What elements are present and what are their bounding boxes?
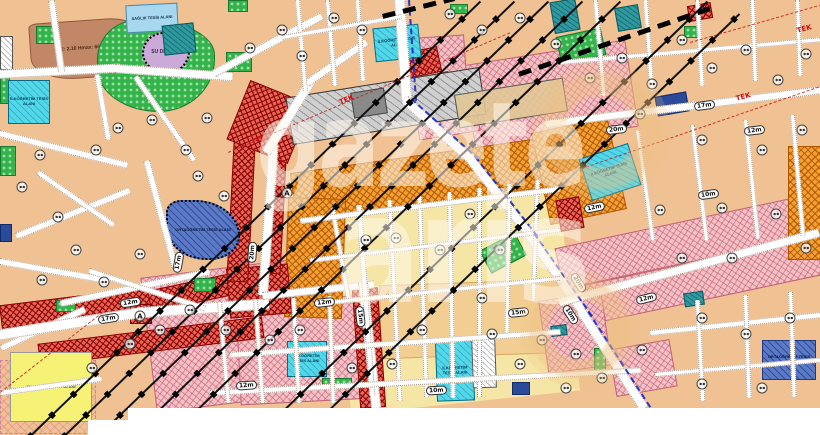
parcel-marker <box>801 49 812 60</box>
parcel-marker <box>147 115 158 126</box>
parcel-marker <box>445 9 456 20</box>
zone-blue-small-s <box>512 382 530 395</box>
road-width-label: 12m <box>744 125 766 136</box>
parcel-marker <box>697 135 708 146</box>
parcel-marker <box>785 313 796 324</box>
parcel-marker <box>113 123 124 134</box>
zone-park-small-10 <box>228 0 248 12</box>
road-segment <box>643 0 654 91</box>
road-width-label: 12m <box>236 380 257 390</box>
map-edge-mask <box>88 420 132 435</box>
road-width-label: 17m <box>97 312 119 324</box>
parcel-marker <box>265 335 276 346</box>
zone-label: İLKÖĞRETİM TESİS ALANI <box>9 81 49 123</box>
parcel-marker <box>219 191 230 202</box>
road-segment <box>743 295 752 398</box>
parcel-marker <box>773 75 784 86</box>
parcel-marker <box>477 25 488 36</box>
parcel-marker <box>727 253 738 264</box>
road-width-label: 10m <box>426 385 447 395</box>
parcel-marker <box>697 313 708 324</box>
parcel-marker <box>717 203 728 214</box>
parcel-marker <box>387 359 398 370</box>
parcel-marker <box>91 145 102 156</box>
parcel-marker <box>193 171 204 182</box>
parcel-marker <box>571 349 582 360</box>
zone-teal-top2 <box>614 4 642 32</box>
parcel-marker <box>515 359 526 370</box>
parcel-marker <box>202 113 213 124</box>
parcel-marker <box>617 53 628 64</box>
parcel-marker <box>647 79 658 90</box>
parcel-marker-a: A <box>135 311 146 322</box>
parcel-marker <box>635 109 646 120</box>
zone-teal-nw <box>162 22 197 55</box>
parcel-marker <box>37 275 48 286</box>
parcel-marker-a: A <box>282 188 293 199</box>
parcel-marker <box>585 73 596 84</box>
zoning-map-canvas[interactable]: E: 2.10 Hmax: 65.50mPARKSAĞLIK TESİS ALA… <box>0 0 820 435</box>
parcel-marker <box>707 63 718 74</box>
road-segment <box>212 13 323 77</box>
parcel-marker <box>35 150 46 161</box>
parcel-marker <box>185 305 196 316</box>
parcel-marker <box>245 43 256 54</box>
parcel-marker <box>17 182 28 193</box>
zoning-plan-screenshot: E: 2.10 Hmax: 65.50mPARKSAĞLIK TESİS ALA… <box>0 0 820 435</box>
road-width-label: 20m <box>247 242 257 263</box>
parcel-marker <box>221 325 232 336</box>
parcel-marker <box>297 51 308 62</box>
parcel-marker <box>677 253 688 264</box>
zone-white-left-edge <box>0 36 13 70</box>
road-width-label: 17m <box>172 252 184 274</box>
zone-park-small-4 <box>0 146 16 176</box>
parcel-marker <box>361 235 372 246</box>
zone-teal-small-1 <box>683 291 705 308</box>
parcel-marker <box>477 293 488 304</box>
road-segment <box>750 0 758 81</box>
parcel-marker <box>71 245 82 256</box>
parcel-marker <box>771 209 782 220</box>
parcel-marker <box>99 277 110 288</box>
parcel-marker <box>391 233 402 244</box>
parcel-marker <box>561 383 572 394</box>
parcel-marker <box>295 325 306 336</box>
parcel-marker <box>435 245 446 256</box>
map-edge-mask <box>128 408 820 435</box>
parcel-marker <box>487 329 498 340</box>
parcel-marker <box>597 373 608 384</box>
parcel-marker <box>677 35 688 46</box>
parcel-marker <box>87 363 98 374</box>
parcel-marker <box>347 363 358 374</box>
parcel-marker <box>637 345 648 356</box>
parcel-marker <box>797 125 808 136</box>
parcel-marker <box>757 145 768 156</box>
road-width-label: 10m <box>697 189 719 201</box>
parcel-marker <box>277 25 288 36</box>
parcel-marker <box>495 245 506 256</box>
parcel-marker <box>697 379 708 390</box>
parcel-marker <box>125 339 136 350</box>
parcel-marker <box>537 335 548 346</box>
parcel-marker <box>181 145 192 156</box>
parcel-marker <box>515 13 526 24</box>
parcel-marker <box>53 212 64 223</box>
parcel-marker <box>655 205 666 216</box>
parcel-marker <box>417 325 428 336</box>
zone-ilkogretim-nw: İLKÖĞRETİM TESİS ALANI <box>8 80 50 124</box>
parcel-marker <box>757 383 768 394</box>
parcel-marker <box>135 249 146 260</box>
parcel-marker <box>741 45 752 56</box>
road-width-label: 17m <box>693 100 715 112</box>
road-segment <box>295 0 308 91</box>
parcel-marker <box>155 325 166 336</box>
zone-navy-left <box>0 224 12 242</box>
parcel-marker <box>329 13 340 24</box>
parcel-marker <box>551 39 562 50</box>
parcel-marker <box>741 329 752 340</box>
road-width-label: 20m <box>606 124 628 135</box>
parcel-marker <box>357 25 368 36</box>
parcel-marker <box>465 209 476 220</box>
parcel-marker <box>801 243 812 254</box>
